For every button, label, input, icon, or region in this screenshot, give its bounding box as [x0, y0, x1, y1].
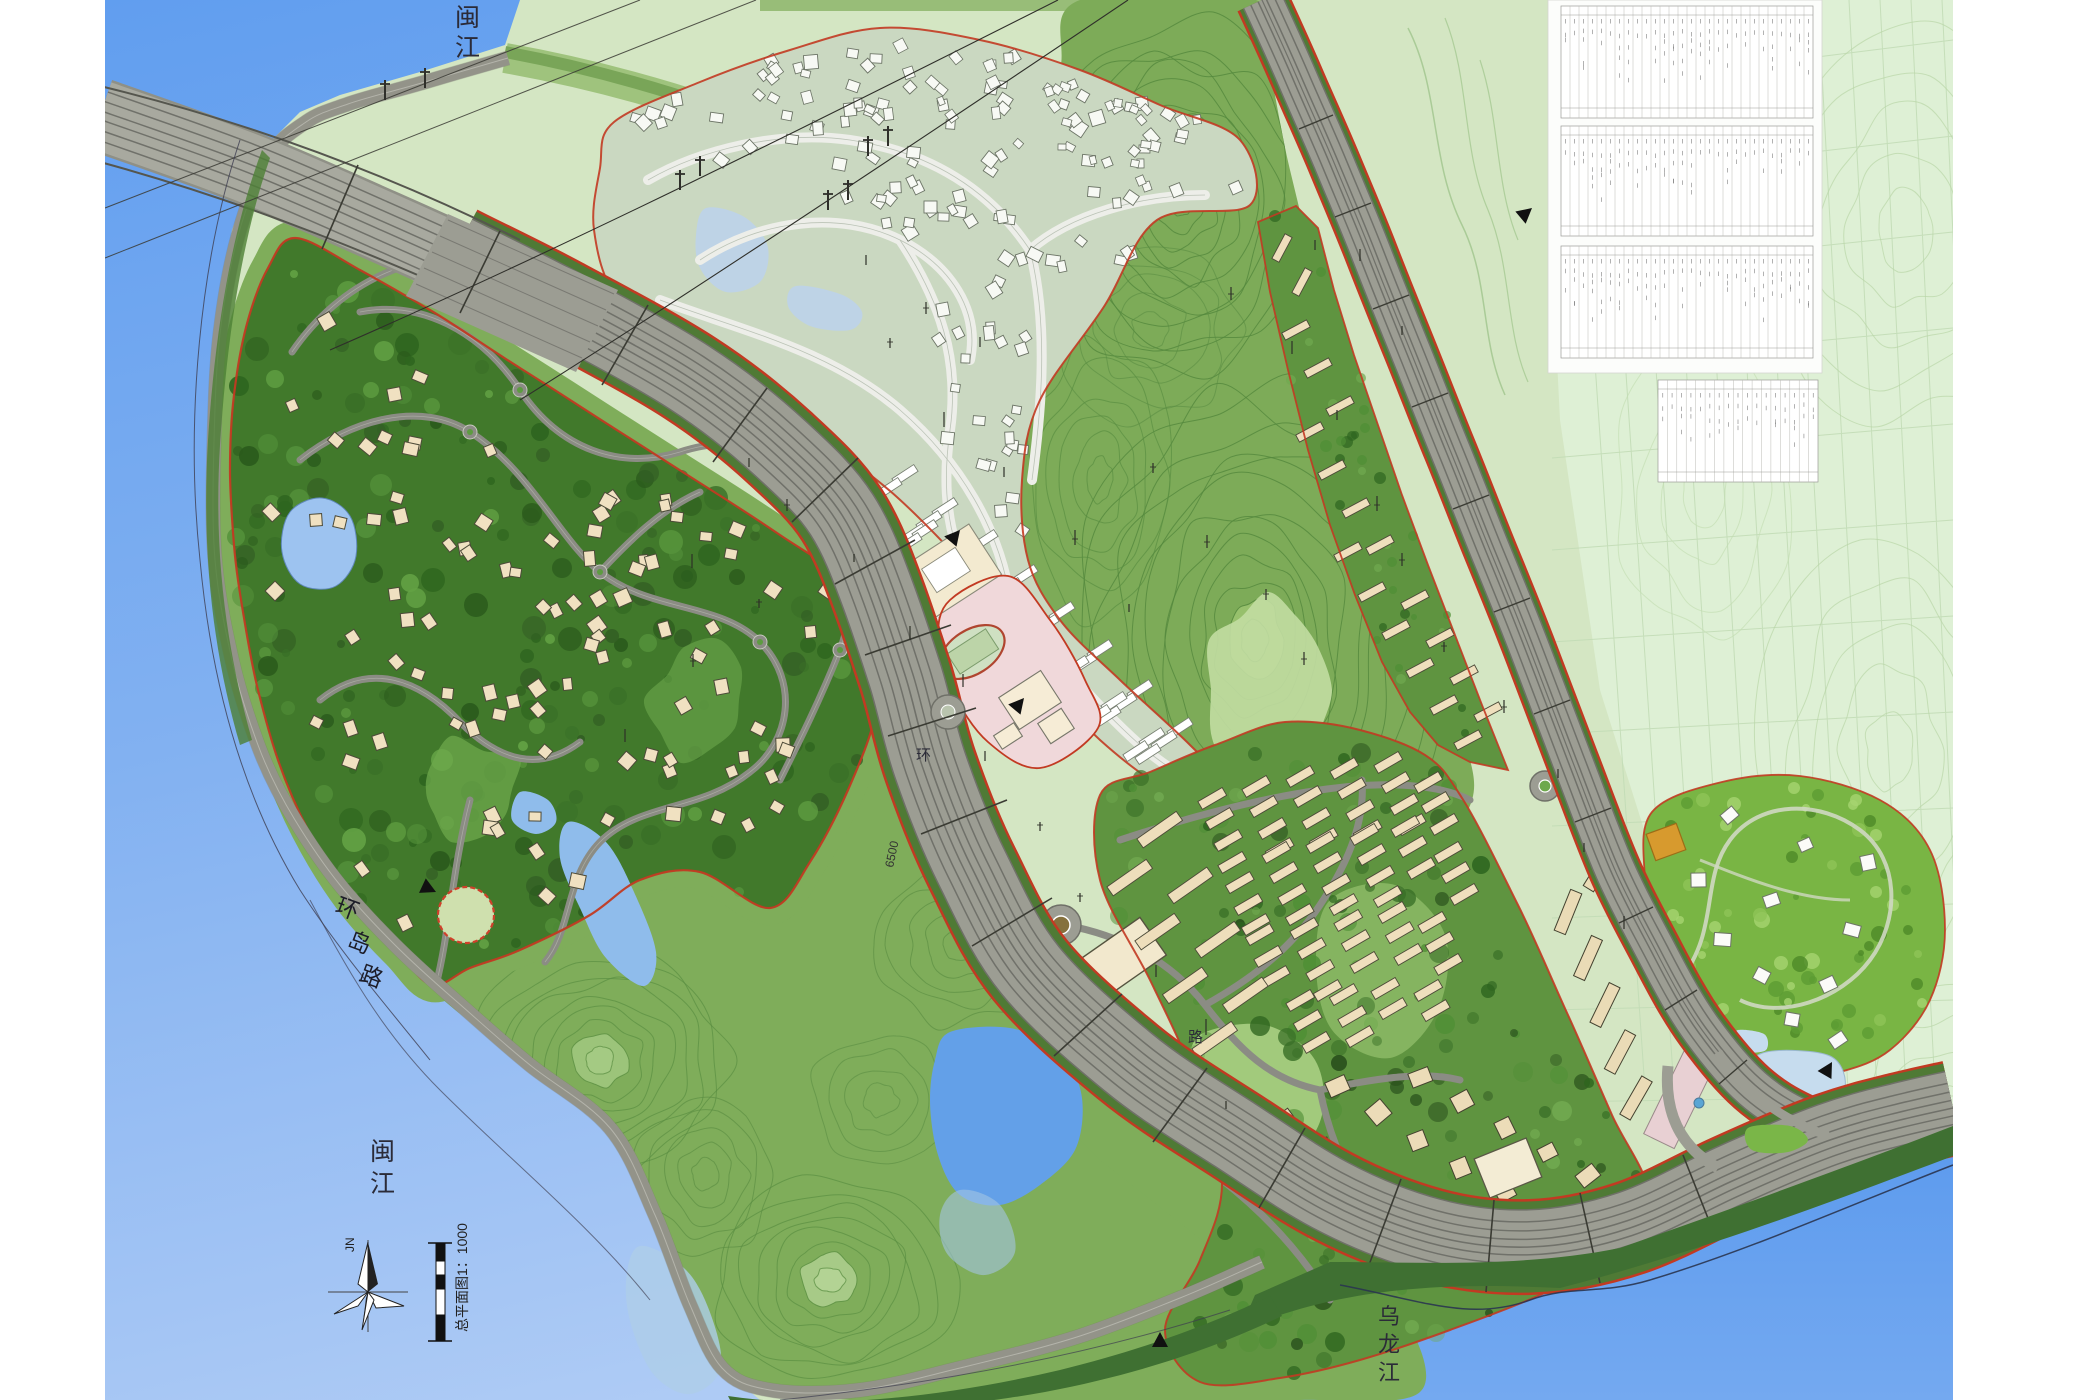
svg-text:JN: JN [343, 1237, 357, 1252]
svg-text:闽: 闽 [455, 4, 480, 32]
svg-text:江: 江 [370, 1170, 395, 1198]
svg-text:路: 路 [1188, 1029, 1203, 1046]
svg-text:江: 江 [455, 34, 480, 62]
svg-text:江: 江 [1378, 1360, 1400, 1385]
svg-text:龙: 龙 [1378, 1332, 1400, 1357]
svg-text:闽: 闽 [370, 1138, 395, 1166]
svg-text:总平面图1：1000: 总平面图1：1000 [454, 1223, 470, 1332]
svg-text:环: 环 [916, 747, 931, 764]
svg-text:乌: 乌 [1378, 1304, 1400, 1329]
